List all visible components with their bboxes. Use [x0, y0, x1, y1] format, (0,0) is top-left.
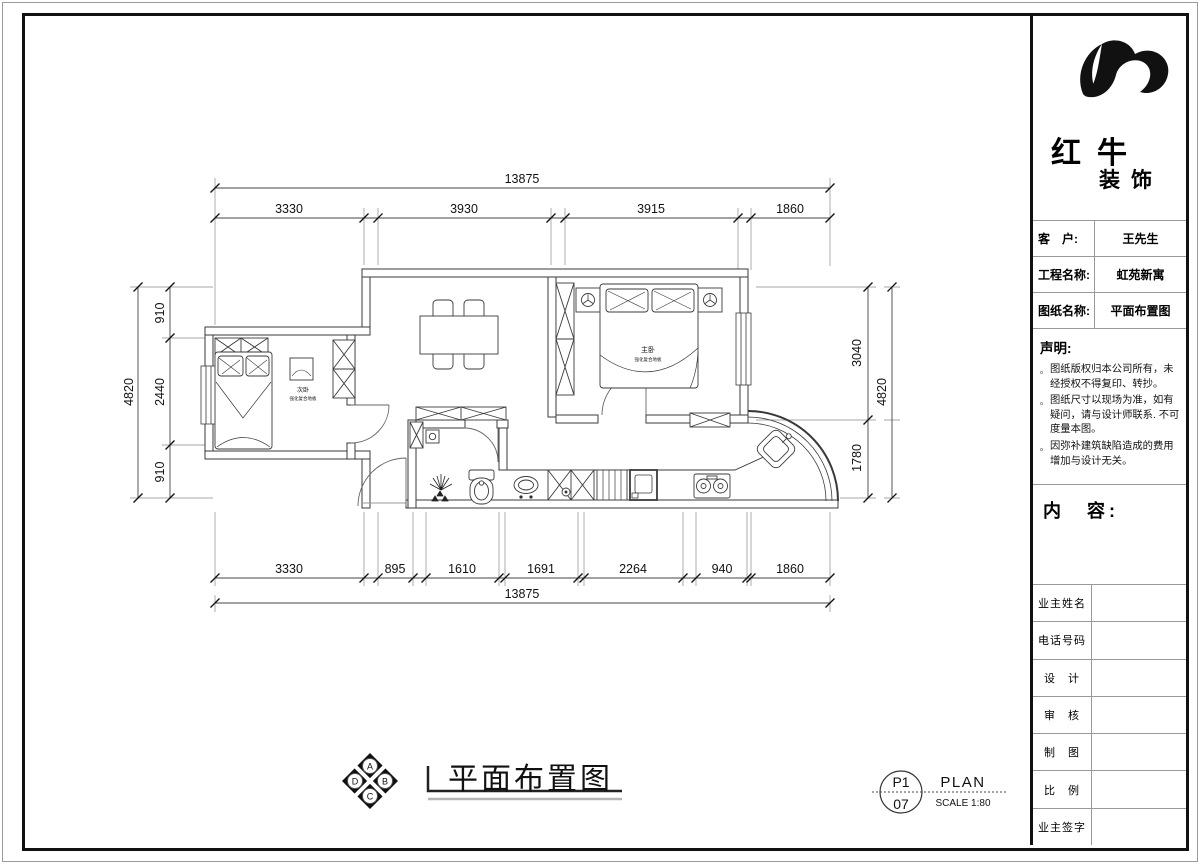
room-label-second-bedroom: 次卧 强化复合地板	[290, 386, 317, 402]
dim-top-seg: 1860	[776, 202, 804, 216]
dim-right-seg: 3040	[850, 339, 864, 367]
window-balcony-pass	[690, 413, 730, 427]
dim-right-seg: 1780	[850, 444, 864, 472]
bed-master-bedroom	[600, 284, 698, 388]
fridge	[630, 470, 657, 500]
statement-section: 声明: 。 图纸版权归本公司所有，未经授权不得复印、转抄。 。 图纸尺寸以现场为…	[1033, 329, 1186, 485]
sheet-type: PLAN	[940, 774, 985, 791]
dim-bottom-seg: 3330	[275, 562, 303, 576]
dim-top-seg: 3330	[275, 202, 303, 216]
title-block: 红牛 装饰 客 户: 王先生 工程名称: 虹苑新寓 图纸名称: 平面布置图 声明…	[1030, 16, 1186, 845]
info-row-project: 工程名称: 虹苑新寓	[1033, 257, 1186, 293]
statement-item: 。 图纸尺寸以现场为准，如有疑问，请与设计师联系. 不可度量本图。	[1040, 394, 1181, 438]
bullet-icon: 。	[1040, 440, 1050, 469]
dim-top-total: 13875	[505, 172, 540, 186]
sign-value-cell	[1092, 809, 1186, 845]
window-right-wall	[736, 313, 751, 385]
sign-value-cell	[1092, 734, 1186, 770]
sign-row-draft: 制 图	[1033, 734, 1186, 771]
statement-item: 。 因弥补建筑缺陷造成的费用增加与设计无关。	[1040, 440, 1181, 469]
signature-table: 业主姓名 电话号码 设 计 审 核 制 图 比 例	[1033, 585, 1186, 845]
dim-bottom-seg: 1860	[776, 562, 804, 576]
sign-label: 业主签字	[1033, 809, 1092, 845]
svg-text:强化复合地板: 强化复合地板	[290, 395, 317, 402]
info-value: 平面布置图	[1095, 293, 1186, 328]
info-row-client: 客 户: 王先生	[1033, 221, 1186, 257]
dim-right-total: 4820	[875, 378, 889, 406]
sign-value-cell	[1092, 660, 1186, 696]
info-label: 图纸名称:	[1033, 293, 1095, 328]
cabinet-hall	[333, 340, 355, 398]
svg-text:C: C	[367, 792, 374, 802]
dim-bottom-seg: 1691	[527, 562, 555, 576]
sheet-code: P1	[892, 774, 909, 790]
dining-set	[420, 300, 498, 369]
drawing-title: 平面布置图	[448, 763, 613, 796]
sign-label: 制 图	[1033, 734, 1092, 770]
sign-value-cell	[1092, 771, 1186, 807]
statement-title: 声明:	[1040, 337, 1181, 357]
dining-table	[420, 316, 498, 354]
svg-text:主卧: 主卧	[641, 345, 655, 354]
sign-row-review: 审 核	[1033, 697, 1186, 734]
brand-sub-name: 装饰	[1099, 164, 1163, 194]
sign-label: 业主姓名	[1033, 585, 1092, 621]
wardrobe-master-bedroom	[556, 283, 574, 395]
svg-text:强化复合地板: 强化复合地板	[635, 356, 662, 363]
dim-bottom-seg: 940	[712, 562, 733, 576]
sign-row-phone: 电话号码	[1033, 622, 1186, 659]
brand-logo-icon	[1055, 36, 1175, 126]
sign-label: 比 例	[1033, 771, 1092, 807]
sign-row-design: 设 计	[1033, 660, 1186, 697]
bullet-icon: 。	[1040, 363, 1050, 392]
svg-text:A: A	[367, 762, 373, 772]
sheet-number-stamp: P1 07 PLAN SCALE 1:80	[872, 771, 1008, 813]
window-left-wall	[201, 366, 216, 424]
dim-top-seg: 3915	[637, 202, 665, 216]
dim-bottom-seg: 1610	[448, 562, 476, 576]
sign-label: 审 核	[1033, 697, 1092, 733]
statement-text: 因弥补建筑缺陷造成的费用增加与设计无关。	[1050, 440, 1181, 469]
toilet	[469, 470, 494, 504]
sign-label: 设 计	[1033, 660, 1092, 696]
sign-value-cell	[1092, 622, 1186, 658]
info-label: 客 户:	[1033, 221, 1095, 256]
info-value: 虹苑新寓	[1095, 257, 1186, 292]
bedside-table-second-bedroom	[290, 358, 313, 380]
nightstand-right	[698, 288, 722, 312]
dim-left-seg: 910	[153, 462, 167, 483]
sign-row-owner-name: 业主姓名	[1033, 585, 1186, 622]
floor-plan-canvas: 13875 3330 3930 3915 1860 3330 895 1610 …	[0, 0, 1200, 864]
sign-row-owner-signature: 业主签字	[1033, 809, 1186, 845]
dim-bottom-seg: 2264	[619, 562, 647, 576]
svg-text:B: B	[382, 777, 388, 787]
corner-shelf	[426, 430, 439, 443]
brand-section: 红牛 装饰	[1033, 16, 1186, 221]
nightstand-left	[576, 288, 600, 312]
drawing-sheet: 13875 3330 3930 3915 1860 3330 895 1610 …	[0, 0, 1200, 864]
bullet-icon: 。	[1040, 394, 1050, 438]
statement-item: 。 图纸版权归本公司所有，未经授权不得复印、转抄。	[1040, 363, 1181, 392]
dim-bottom-total: 13875	[505, 587, 540, 601]
kitchen-counter	[548, 444, 792, 470]
dim-bottom-seg: 895	[385, 562, 406, 576]
washing-machine	[597, 470, 627, 500]
info-value: 王先生	[1095, 221, 1186, 256]
info-label: 工程名称:	[1033, 257, 1095, 292]
bathroom-door	[464, 428, 498, 462]
compass-icon: A B C D	[342, 753, 398, 809]
dim-top-seg: 3930	[450, 202, 478, 216]
info-row-drawing: 图纸名称: 平面布置图	[1033, 293, 1186, 329]
second-bedroom-door	[351, 405, 389, 443]
gas-stove	[694, 474, 730, 498]
sign-value-cell	[1092, 697, 1186, 733]
sign-row-scale: 比 例	[1033, 771, 1186, 808]
wash-basin	[507, 470, 548, 498]
sign-label: 电话号码	[1033, 622, 1092, 658]
dim-left-total: 4820	[122, 378, 136, 406]
dim-left-seg: 910	[153, 303, 167, 324]
bed-second-bedroom	[215, 352, 272, 449]
plant-icon	[430, 474, 452, 501]
sheet-scale: SCALE 1:80	[935, 798, 990, 809]
svg-text:次卧: 次卧	[297, 386, 309, 394]
content-section: 内 容:	[1033, 485, 1186, 585]
statement-text: 图纸尺寸以现场为准，如有疑问，请与设计师联系. 不可度量本图。	[1050, 394, 1181, 438]
kitchen-base-cabinets	[548, 470, 594, 500]
sheet-number: 07	[893, 796, 909, 812]
dim-left-seg: 2440	[153, 378, 167, 406]
svg-text:D: D	[352, 777, 359, 787]
content-label: 内 容:	[1043, 501, 1119, 521]
statement-text: 图纸版权归本公司所有，未经授权不得复印、转抄。	[1050, 363, 1181, 392]
drawing-title-block: 平面布置图	[428, 763, 622, 799]
sign-value-cell	[1092, 585, 1186, 621]
